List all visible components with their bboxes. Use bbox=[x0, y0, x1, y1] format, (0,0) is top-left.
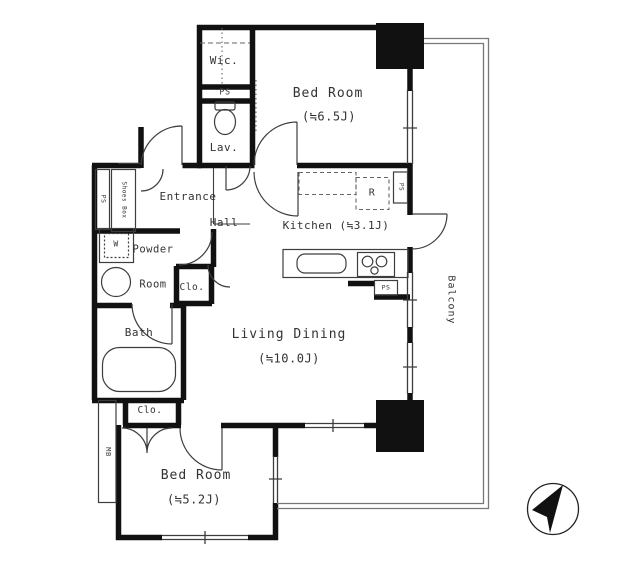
label-refrigerator: R bbox=[369, 188, 376, 199]
label-ps-entrance: PS bbox=[99, 195, 106, 204]
label-bedroom1-name: Bed Room bbox=[293, 87, 364, 101]
window-living-east-2 bbox=[403, 342, 417, 394]
toilet-icon bbox=[215, 102, 236, 135]
door-balcony-kitchen bbox=[412, 214, 447, 249]
window-living-south bbox=[305, 419, 364, 432]
label-ps-kitchen-wall: PS bbox=[397, 183, 404, 191]
label-washer: W bbox=[113, 241, 118, 250]
door-bedroom2 bbox=[180, 428, 222, 470]
label-bath: Bath bbox=[125, 327, 154, 339]
label-living-size: (≒10.0J) bbox=[258, 352, 320, 365]
label-kitchen: Kitchen (≒3.1J) bbox=[283, 220, 390, 232]
label-bedroom1-size: (≒6.5J) bbox=[302, 110, 356, 123]
label-powder-line1: Powder bbox=[133, 245, 174, 257]
door-lavatory bbox=[226, 166, 250, 190]
label-hall: Hall bbox=[210, 217, 239, 229]
floor-plan: Wic. PS Lav. Bed Room (≒6.5J) Entrance H… bbox=[0, 0, 640, 569]
compass-needle bbox=[532, 485, 563, 533]
bathtub-icon bbox=[103, 348, 176, 392]
label-wic: Wic. bbox=[210, 55, 239, 67]
label-living-name: Living Dining bbox=[232, 328, 347, 342]
door-closet-bedroom2-bifold bbox=[122, 428, 172, 453]
kitchen-counter-dashed bbox=[299, 173, 356, 195]
label-lav: Lav. bbox=[210, 142, 239, 154]
label-shoes-box: Shoes Box bbox=[120, 181, 127, 218]
label-closet-bedroom2: Clo. bbox=[138, 406, 163, 416]
stove-icon bbox=[358, 253, 395, 277]
door-hall-kitchen bbox=[254, 172, 298, 216]
label-powder-room: Powder Room bbox=[133, 222, 174, 303]
label-powder-line2: Room bbox=[133, 279, 174, 291]
door-entrance-child bbox=[141, 169, 163, 191]
label-entrance: Entrance bbox=[160, 191, 217, 203]
label-ps-kitchen: PS bbox=[382, 284, 391, 291]
door-entrance-main bbox=[141, 126, 182, 165]
door-powder-room bbox=[179, 232, 212, 265]
window-living-east-1 bbox=[403, 272, 417, 328]
label-meter-box: MB bbox=[103, 447, 111, 456]
label-bedroom2-size: (≒5.2J) bbox=[167, 493, 221, 506]
window-bedroom2-south bbox=[162, 531, 248, 544]
window-bedroom2-east bbox=[269, 456, 282, 503]
label-bedroom2-name: Bed Room bbox=[161, 469, 232, 483]
label-closet-hall: Clo. bbox=[180, 283, 205, 293]
pillar-top-right bbox=[376, 23, 424, 69]
pillars bbox=[376, 23, 424, 452]
compass bbox=[528, 484, 579, 535]
label-ps-top: PS bbox=[219, 88, 230, 97]
window-bedroom1-east bbox=[403, 90, 417, 164]
door-bedroom1 bbox=[254, 122, 297, 165]
label-balcony: Balcony bbox=[446, 275, 457, 324]
pillar-bottom-right bbox=[376, 400, 424, 452]
kitchen-sink-icon bbox=[297, 254, 346, 273]
powder-sink-icon bbox=[102, 268, 131, 297]
wall-entrance-top bbox=[92, 127, 202, 168]
